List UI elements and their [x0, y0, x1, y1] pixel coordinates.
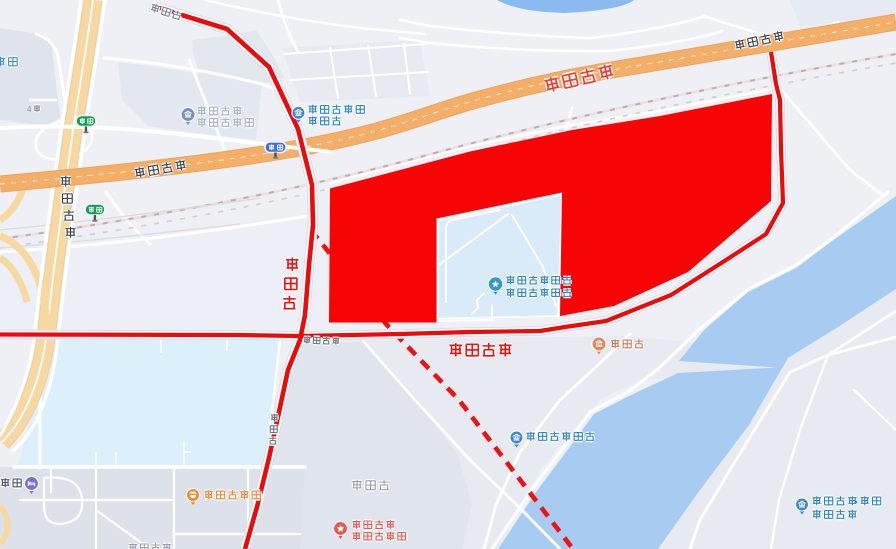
svg-text:4: 4 [27, 105, 32, 114]
